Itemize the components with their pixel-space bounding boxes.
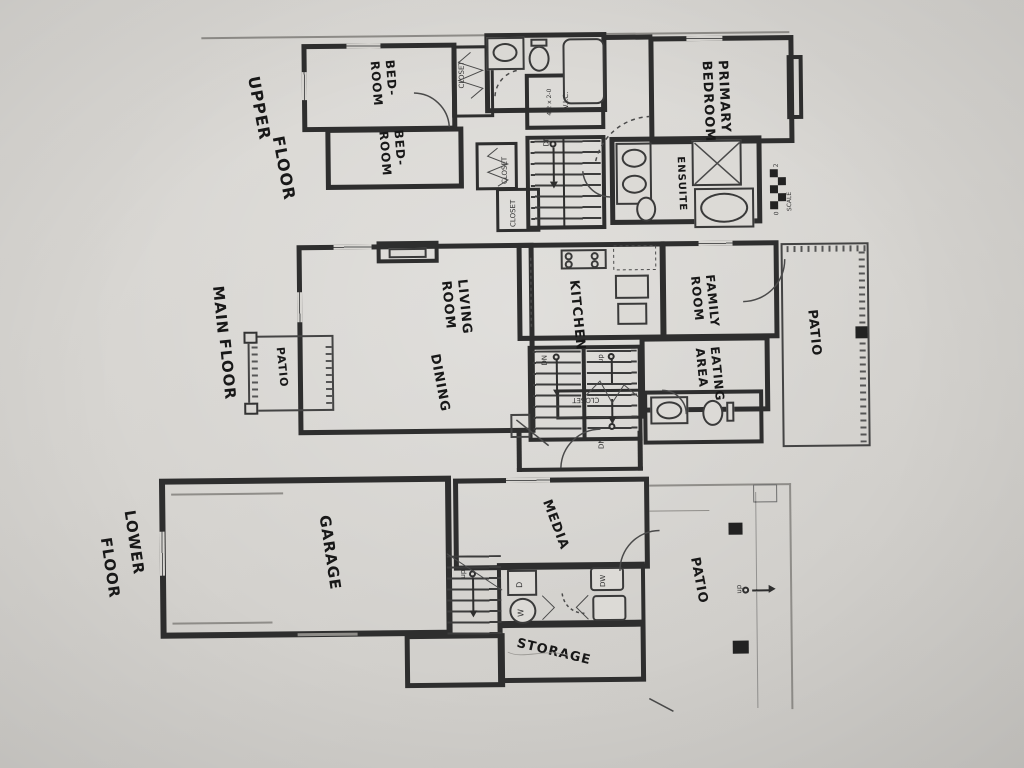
toilet-tank-icon — [726, 402, 734, 422]
eating-area-label: EATINGAREA — [692, 346, 727, 404]
laundry-sink-icon — [592, 595, 626, 621]
patio-gate-box — [753, 484, 777, 502]
scale-two: 2 — [774, 163, 781, 167]
window — [699, 241, 733, 246]
window — [160, 532, 165, 576]
family-room-label: FAMILYROOM — [687, 274, 722, 330]
stair-arrowhead — [469, 610, 477, 617]
dryer-label: D — [516, 582, 525, 588]
scale-bar — [778, 177, 786, 185]
scale-bar — [770, 169, 778, 177]
stairs-up-label: up — [460, 570, 468, 579]
burner-icon — [591, 252, 599, 260]
railing-post — [244, 403, 258, 415]
stair-arrowhead — [550, 182, 558, 189]
stair-arrowhead — [553, 389, 561, 396]
upper-floor-title-2: FLOOR — [268, 134, 300, 202]
stairs-dn-label: DN — [543, 136, 551, 147]
floor-plan-photo: UPPER FLOOR BED-ROOM BED-ROOM PRIMARYBED… — [0, 0, 1024, 768]
fireplace-firebox — [389, 248, 427, 258]
primary-bay-notch — [787, 55, 804, 119]
burner-icon — [565, 252, 573, 260]
dishwasher-label: DW — [600, 575, 608, 587]
scale-label: SCALE — [787, 192, 794, 211]
scale-bar — [778, 193, 786, 201]
primary-bedroom-label: PRIMARYBEDROOM — [697, 60, 733, 143]
scale-bar — [770, 201, 778, 209]
closet-label: CLOSET — [572, 395, 599, 403]
toilet-icon — [528, 46, 549, 72]
stair-arrow — [611, 359, 613, 383]
entry-wall — [517, 467, 643, 472]
bedroom2-label: BED-ROOM — [375, 129, 409, 177]
patio-edge — [789, 483, 793, 709]
deck-post — [728, 523, 742, 535]
toilet-icon — [702, 400, 723, 426]
closet-label: CLOSET — [502, 157, 510, 184]
wic-label: W.I.C. — [563, 92, 571, 112]
stairs-dn-label: DN — [599, 438, 607, 449]
lower-floor-title-2: FLOOR — [96, 536, 124, 599]
main-floor-title-1: MAIN — [208, 285, 231, 335]
patio-main-left — [247, 335, 334, 412]
living-room-label: LIVINGROOM — [437, 278, 475, 336]
garage-door-mark — [298, 633, 358, 637]
patio-railing — [252, 343, 259, 405]
main-floor-title-2: FLOOR — [215, 338, 240, 401]
shower-icon — [691, 140, 741, 187]
burner-icon — [591, 260, 599, 268]
patio-main-right — [781, 242, 871, 447]
stair-arrow — [553, 148, 555, 182]
scale-zero: 0 — [774, 211, 781, 215]
stairs-dn-label: DN — [542, 355, 550, 366]
window — [302, 72, 307, 100]
window — [297, 292, 302, 322]
railing-post — [855, 326, 867, 338]
toilet-tank-icon — [530, 39, 547, 47]
stair-arrow — [556, 360, 558, 390]
stair-arrow-dot — [469, 570, 476, 577]
kitchen-appliance — [615, 275, 649, 299]
deck-post — [733, 641, 749, 654]
plan-sheet: UPPER FLOOR BED-ROOM BED-ROOM PRIMARYBED… — [0, 0, 1024, 768]
stair-arrow — [472, 577, 474, 611]
washer-label: W — [517, 609, 526, 617]
window — [346, 43, 380, 48]
toilet-icon — [636, 196, 656, 221]
kitchen-appliance — [617, 303, 647, 325]
wic-dims-label: 4-2 x 2-0 — [547, 89, 554, 116]
patio-edge — [649, 510, 709, 512]
closet-label: CLOSET — [459, 61, 467, 88]
upper-floor-title-1: UPPER — [243, 75, 275, 142]
entry-wall — [637, 431, 642, 471]
patio-step-arrow — [752, 589, 770, 591]
patio-divider-dashed — [755, 492, 758, 707]
window — [506, 478, 550, 483]
patio-railing — [326, 342, 333, 404]
wall-segment — [604, 35, 652, 41]
lower-entry-nook — [405, 633, 506, 688]
bedroom1-label: BED-ROOM — [367, 59, 401, 107]
patio-step-arrowhead — [769, 585, 776, 593]
patio-up-label: up — [736, 585, 744, 594]
scale-bar — [770, 185, 778, 193]
ensuite-label: ENSUITE — [673, 156, 688, 211]
patio-railing — [787, 245, 867, 252]
room-garage — [159, 476, 453, 639]
window — [686, 36, 722, 41]
burner-icon — [565, 260, 573, 268]
window — [334, 244, 372, 249]
stairs-upper — [530, 140, 601, 225]
closet-label: CLOSET — [510, 200, 518, 227]
stair-arrowhead — [608, 417, 616, 424]
patio-lower-label: PATIO — [686, 556, 711, 605]
stairs-up-label: up — [598, 354, 606, 363]
lower-floor-title-1: LOWER — [120, 509, 148, 576]
railing-post — [243, 332, 257, 344]
utility-box — [510, 414, 530, 438]
closet-bedroom-2 — [475, 142, 518, 190]
